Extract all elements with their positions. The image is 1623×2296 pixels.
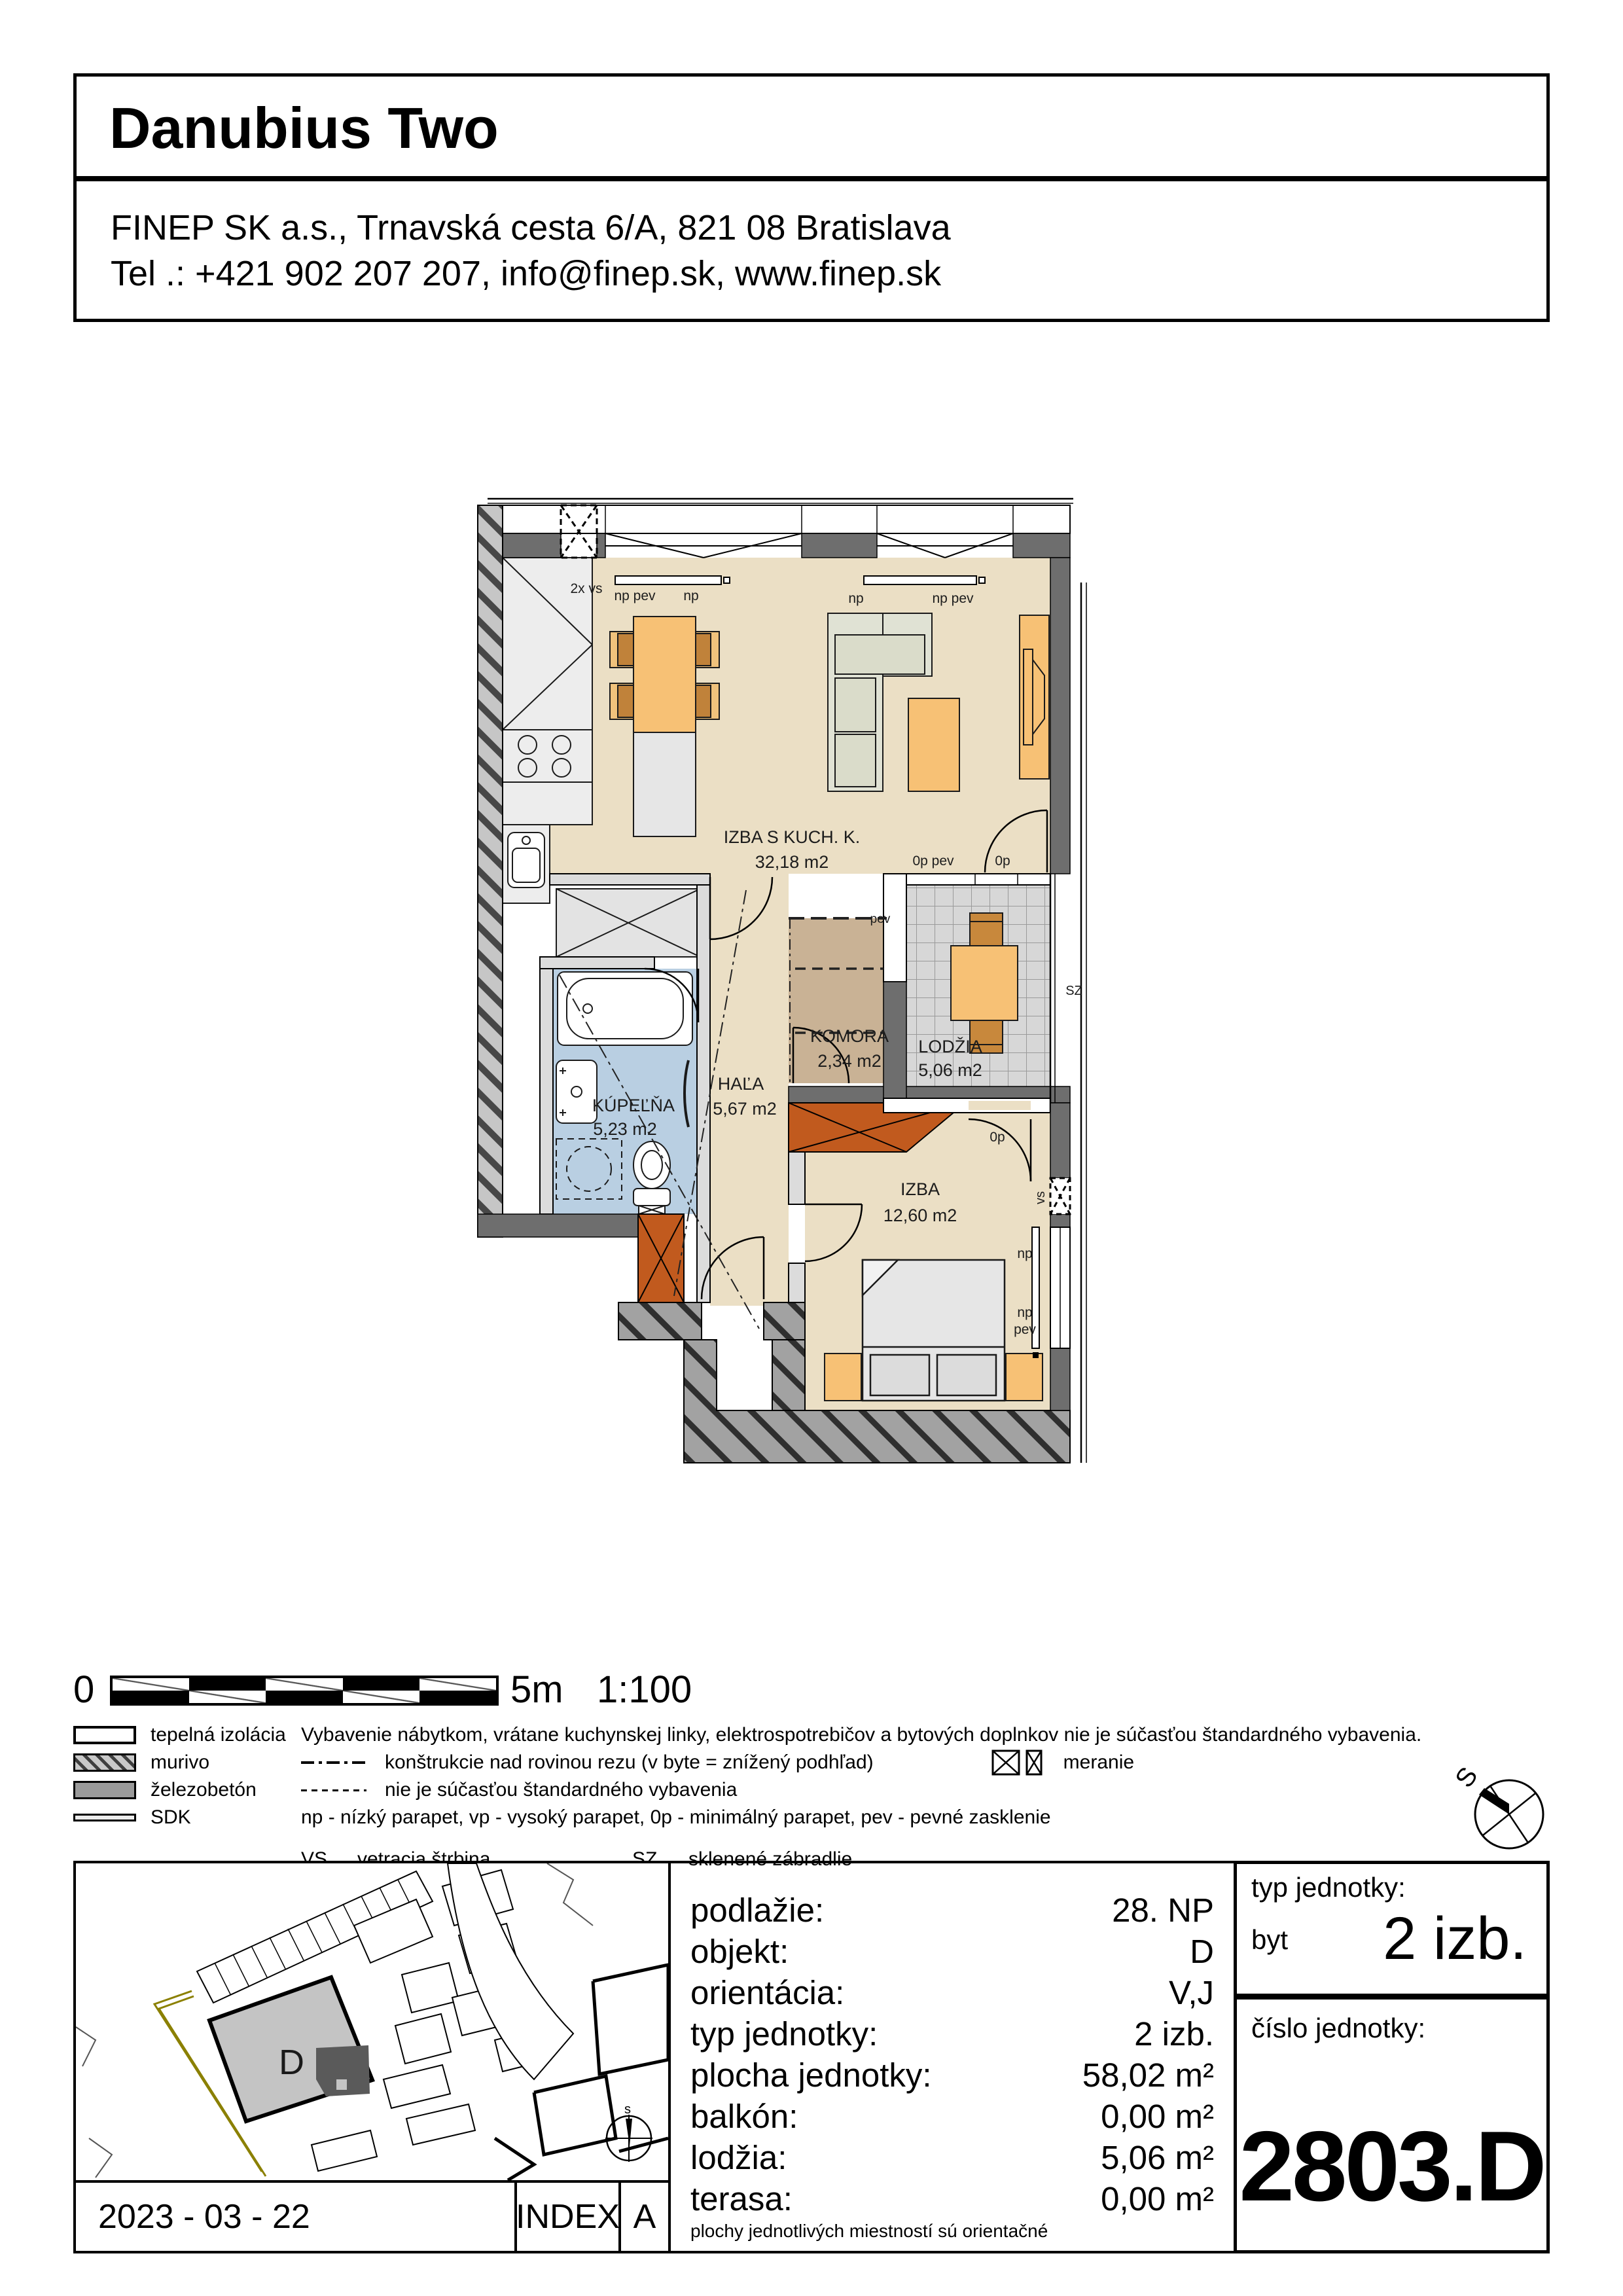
meter-box-icon	[991, 1749, 1020, 1776]
pillow	[937, 1355, 996, 1395]
info-footnote: plochy jednotlivých miestností sú orient…	[690, 2221, 1048, 2242]
north-letter: S	[1457, 1762, 1484, 1793]
map-north-letter: s	[624, 2102, 631, 2117]
info-value: 28. NP	[1112, 1891, 1214, 1929]
parapet-label: np	[848, 591, 863, 606]
building-outline	[312, 2130, 377, 2171]
dashed-sample	[301, 1789, 366, 1791]
info-label: plocha jednotky:	[690, 2056, 932, 2094]
info-value: 5,06 m²	[1101, 2138, 1214, 2177]
revision-cell: A	[621, 2183, 671, 2253]
parapet-label: 0p pev	[912, 853, 954, 869]
glass-balustrade-label: SZ	[1065, 984, 1082, 998]
kitchen-island	[633, 732, 696, 836]
scale-bar	[110, 1676, 499, 1706]
legend-label: murivo	[151, 1751, 209, 1774]
parapet-label: np	[1017, 1246, 1032, 1261]
floor-plan-drawing: IZBA S KUCH. K. 32,18 m2 KÚPEĽŇA 5,23 m2…	[458, 484, 1106, 1466]
meranie-label: meranie	[1063, 1751, 1134, 1774]
dash-dot-sample	[301, 1761, 366, 1764]
pillow	[870, 1355, 929, 1395]
header-divider	[77, 176, 1546, 181]
room-area: 2,34 m2	[817, 1051, 882, 1071]
toilet	[633, 1141, 670, 1214]
insulation-swatch	[73, 1726, 136, 1744]
murivo-swatch	[73, 1753, 136, 1772]
project-title: Danubius Two	[109, 95, 499, 162]
road	[448, 1863, 573, 2079]
info-row-lodzia: lodžia: 5,06 m²	[671, 2137, 1234, 2178]
murivo-left-wall	[478, 505, 503, 1237]
unit-info-table: podlažie: 28. NP objekt: D orientácia: V…	[671, 1861, 1234, 2253]
legend-label: tepelná izolácia	[151, 1724, 286, 1746]
vent-shaft-bedroom	[1050, 1178, 1070, 1214]
note-text: konštrukcie nad rovinou rezu (v byte = z…	[385, 1751, 874, 1774]
note-structures: konštrukcie nad rovinou rezu (v byte = z…	[301, 1749, 1479, 1776]
info-value: 58,02 m²	[1082, 2056, 1214, 2094]
room-label: KÚPEĽŇA	[592, 1095, 675, 1115]
unit-number-box: číslo jednotky: 2803.D	[1234, 1997, 1550, 2253]
legend-item-concrete: železobetón	[73, 1776, 309, 1804]
scale-bar-row: 0 5m 1:100	[73, 1668, 793, 1707]
north-compass: S	[1457, 1761, 1555, 1859]
info-label: objekt:	[690, 1932, 789, 1971]
room-label: IZBA S KUCH. K.	[724, 827, 861, 847]
legend-label: SDK	[151, 1806, 191, 1829]
building-d-label: D	[279, 2043, 304, 2082]
bath-sink	[556, 1060, 597, 1123]
room-area: 12,60 m2	[883, 1206, 957, 1225]
unit-number-label: číslo jednotky:	[1251, 2013, 1425, 2044]
nightstand	[1006, 1354, 1043, 1401]
info-row-orientacia: orientácia: V,J	[671, 1972, 1234, 2013]
building-outline	[395, 2014, 451, 2064]
scale-max: 5m	[510, 1668, 563, 1712]
info-row-plocha: plocha jednotky: 58,02 m²	[671, 2054, 1234, 2096]
room-label: IZBA	[901, 1179, 940, 1199]
room-label: LODŽIA	[918, 1036, 982, 1056]
unit-panel: typ jednotky: byt 2 izb. číslo jednotky:…	[1234, 1861, 1550, 2253]
unit-type-value: 2 izb.	[1383, 1905, 1527, 1973]
company-address: FINEP SK a.s., Trnavská cesta 6/A, 821 0…	[111, 205, 951, 296]
note-text: nie je súčasťou štandardného vybavenia	[385, 1779, 737, 1801]
info-row-objekt: objekt: D	[671, 1931, 1234, 1972]
room-area: 32,18 m2	[755, 852, 829, 872]
info-label: terasa:	[690, 2179, 793, 2218]
site-map: D s	[76, 1863, 668, 2180]
legend-item-insulation: tepelná izolácia	[73, 1721, 309, 1749]
unit-number-value: 2803.D	[1237, 2109, 1546, 2224]
info-value: V,J	[1169, 1973, 1214, 2012]
note-nonstandard: nie je súčasťou štandardného vybavenia	[301, 1776, 1479, 1804]
info-value: D	[1190, 1932, 1214, 1971]
index-cell: INDEX	[517, 2183, 621, 2253]
shaft-rust-1	[638, 1214, 684, 1302]
note-parapets: np - nízký parapet, vp - vysoký parapet,…	[301, 1804, 1479, 1831]
legend-label: železobetón	[151, 1779, 257, 1801]
scale-zero: 0	[73, 1668, 94, 1712]
legend-materials: tepelná izolácia murivo železobetón SDK	[73, 1721, 309, 1831]
info-value: 0,00 m²	[1101, 2179, 1214, 2218]
info-row-podlazie: podlažie: 28. NP	[671, 1890, 1234, 1931]
parapet-label: np pev	[932, 591, 974, 606]
nightstand	[825, 1354, 861, 1401]
building-d-parcel: D	[209, 1977, 372, 2121]
info-row-balkon: balkón: 0,00 m²	[671, 2096, 1234, 2137]
legend-item-murivo: murivo	[73, 1749, 309, 1776]
info-label: orientácia:	[690, 1973, 844, 2012]
info-label: balkón:	[690, 2097, 798, 2136]
building-outline	[383, 2065, 450, 2108]
info-value: 0,00 m²	[1101, 2097, 1214, 2136]
date-cell: 2023 - 03 - 22	[73, 2183, 517, 2253]
parapet-label: np	[683, 588, 698, 603]
legend-notes: Vybavenie nábytkom, vrátane kuchynskej l…	[301, 1721, 1479, 1873]
info-label: podlažie:	[690, 1891, 824, 1929]
info-value: 2 izb.	[1134, 2015, 1214, 2053]
footer-row: 2023 - 03 - 22 INDEX A	[73, 2183, 671, 2253]
info-label: typ jednotky:	[690, 2015, 878, 2053]
parapet-label: 0p	[990, 1130, 1005, 1145]
building-outline	[402, 1963, 459, 2013]
address-line-1: FINEP SK a.s., Trnavská cesta 6/A, 821 0…	[111, 205, 951, 251]
sdk-swatch	[73, 1814, 136, 1821]
info-label: lodžia:	[690, 2138, 787, 2177]
unit-type-sub: byt	[1251, 1924, 1288, 1956]
unit-type-box: typ jednotky: byt 2 izb.	[1234, 1861, 1550, 1997]
legend-item-sdk: SDK	[73, 1804, 309, 1831]
address-line-2: Tel .: +421 902 207 207, info@finep.sk, …	[111, 251, 951, 296]
parapet-label: 0p	[995, 853, 1010, 869]
parapet-label: pev	[1014, 1322, 1036, 1337]
room-area: 5,06 m2	[918, 1060, 982, 1080]
parapet-label: pev	[870, 912, 891, 926]
room-label: HAĽA	[718, 1074, 764, 1094]
meranie-symbol: meranie	[991, 1749, 1134, 1776]
meter-box-icon	[1026, 1749, 1043, 1776]
unit-type-label: typ jednotky:	[1251, 1872, 1406, 1903]
loggia-table	[951, 946, 1018, 1020]
header: Danubius Two FINEP SK a.s., Trnavská ces…	[73, 73, 1550, 322]
parapet-label: np pev	[614, 588, 656, 603]
vent-label: vs	[1033, 1191, 1048, 1204]
room-area: 5,23 m2	[593, 1119, 657, 1139]
info-row-terasa: terasa: 0,00 m²	[671, 2178, 1234, 2219]
tv-sideboard	[1020, 615, 1049, 779]
scale-ratio: 1:100	[597, 1668, 692, 1712]
info-row-typ: typ jednotky: 2 izb.	[671, 2013, 1234, 2054]
parapet-label: np	[1017, 1305, 1032, 1320]
note-equipment: Vybavenie nábytkom, vrátane kuchynskej l…	[301, 1721, 1479, 1749]
room-label: KOMORA	[810, 1026, 889, 1046]
dining-table	[633, 617, 696, 732]
title-block: D s 2023 - 03 - 22 INDEX A	[73, 1861, 1550, 2253]
room-area: 5,67 m2	[713, 1099, 777, 1119]
coffee-table	[908, 698, 959, 791]
building-outline	[406, 2104, 475, 2145]
floorplan-document: Danubius Two FINEP SK a.s., Trnavská ces…	[0, 0, 1623, 2296]
site-map-panel: D s	[73, 1861, 671, 2183]
chair	[970, 913, 1003, 946]
vent-label: 2x vs	[570, 581, 602, 596]
concrete-swatch	[73, 1781, 136, 1799]
